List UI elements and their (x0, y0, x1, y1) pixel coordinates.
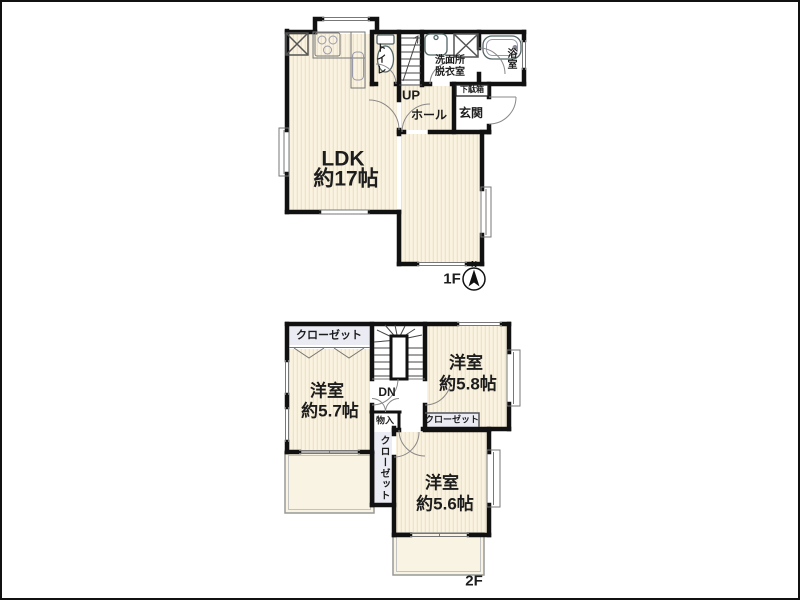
floor1-title: 1F (443, 272, 461, 287)
room58-size-label: 約5.8帖 (439, 376, 497, 393)
shoe-cabinet-label: 下駄箱 (460, 86, 484, 94)
washroom-fixtures (425, 34, 478, 57)
floor-plan-image: N (0, 0, 800, 600)
toilet-label: トイレ (374, 43, 384, 76)
stairs-up-label: UP (402, 89, 420, 102)
f2-stairs-icon (372, 325, 425, 379)
closet-nw-label: クローゼット (296, 331, 362, 342)
f2-stairs-core (391, 336, 407, 379)
room58-label: 洋室 (449, 355, 483, 372)
room57-label: 洋室 (310, 383, 344, 400)
f2-room58-top-window (457, 323, 502, 326)
f1-kitchen-window (322, 18, 370, 21)
floor-plan-drawing: N (2, 2, 798, 598)
f1-bottom-window (319, 210, 370, 214)
entrance-label: 玄関 (459, 107, 483, 119)
stairs-down-label: DN (378, 386, 395, 398)
f1-ext-bottom-window (417, 263, 467, 266)
room56-label: 洋室 (425, 475, 459, 492)
ldk-size-label: 約17帖 (313, 169, 378, 190)
ldk-label: LDK (321, 149, 364, 170)
entrance-door (489, 97, 516, 124)
closet-center-label: クローゼット (378, 435, 388, 501)
hall-label: ホール (411, 109, 447, 121)
washroom-label-1: 洗面所 (435, 56, 465, 66)
storage-label: 物入 (376, 417, 394, 426)
compass-north-label: N (471, 260, 477, 269)
balcony-west-outline (285, 452, 374, 513)
room56-size-label: 約5.6帖 (416, 496, 474, 513)
floor2-title: 2F (465, 574, 483, 589)
washer-space-icon (454, 34, 478, 57)
washroom-label-2: 脱衣室 (435, 68, 465, 78)
storage-doors (372, 399, 399, 413)
bath-label: 浴室 (505, 48, 515, 70)
f1-ldk-extension-area (401, 134, 480, 262)
balcony-south-outline (393, 533, 484, 575)
room57-size-label: 約5.7帖 (301, 403, 359, 420)
f1-bath-window (523, 40, 526, 70)
closet-e-label: クローゼット (425, 416, 479, 425)
f1-stairs-icon (399, 36, 422, 85)
